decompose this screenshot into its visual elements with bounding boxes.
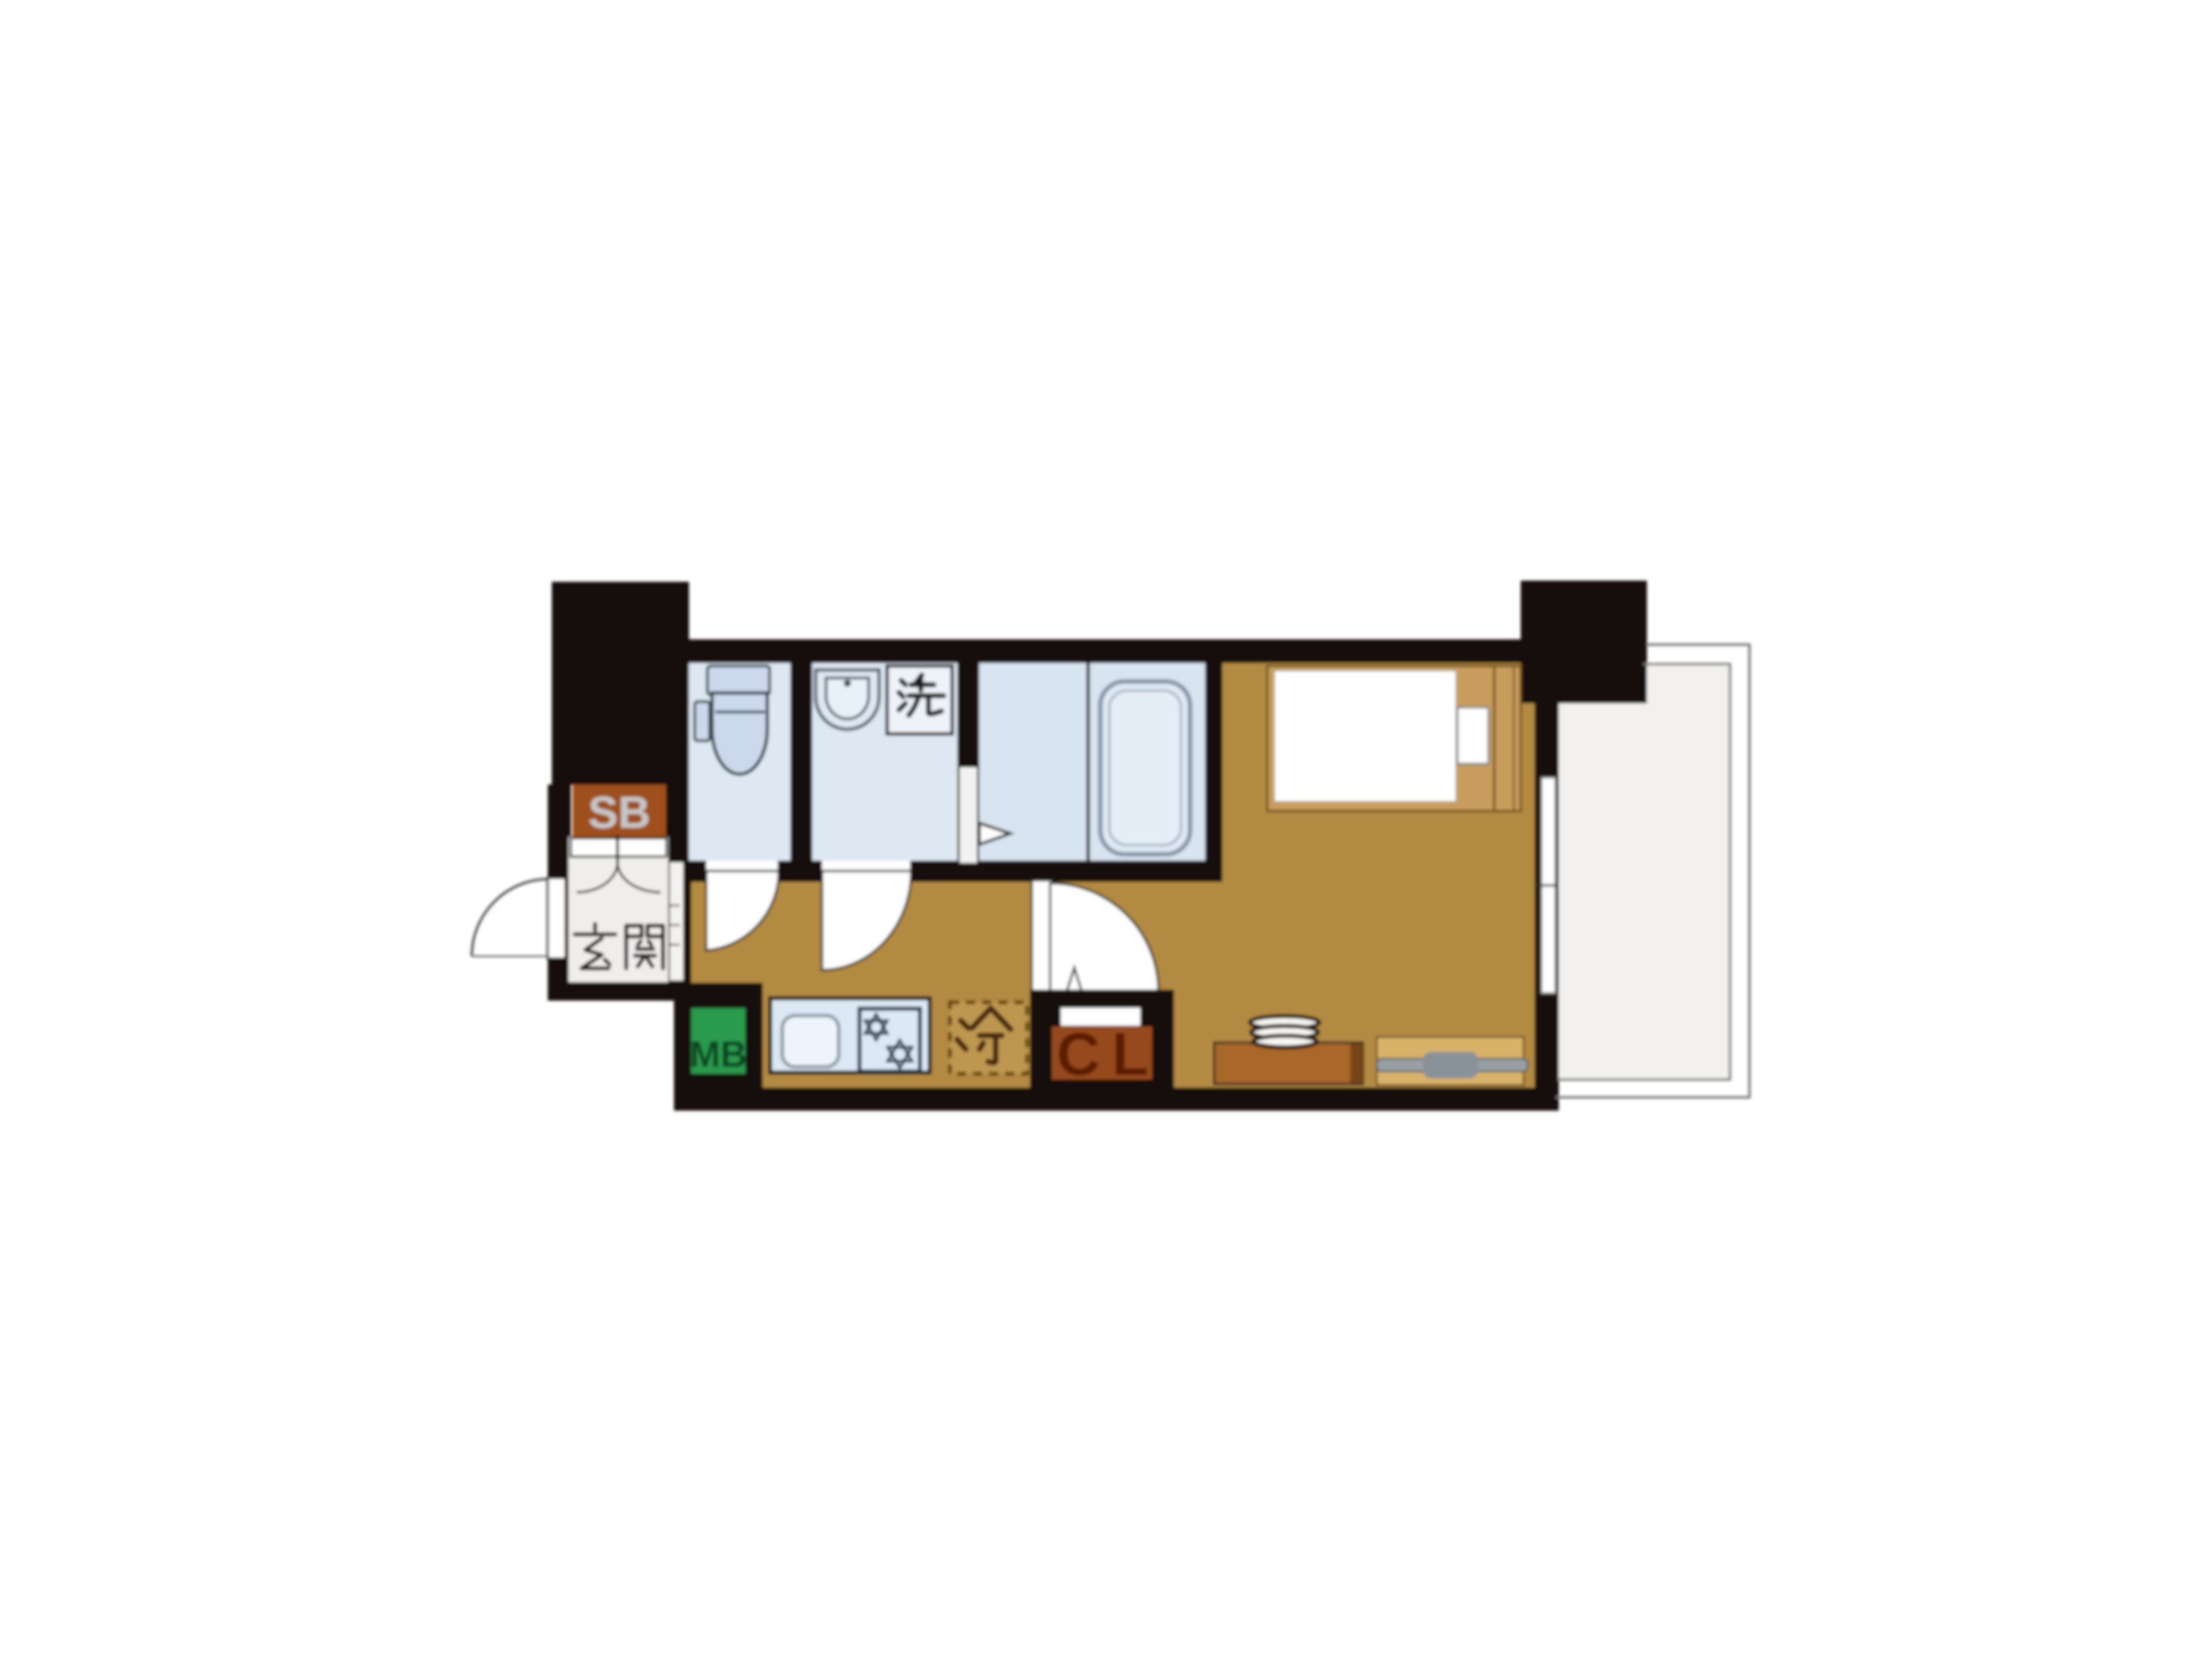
svg-text:MB: MB (690, 1033, 747, 1075)
svg-text:SB: SB (588, 787, 650, 838)
svg-text:C: C (1056, 1021, 1100, 1088)
svg-text:L: L (1112, 1021, 1149, 1088)
